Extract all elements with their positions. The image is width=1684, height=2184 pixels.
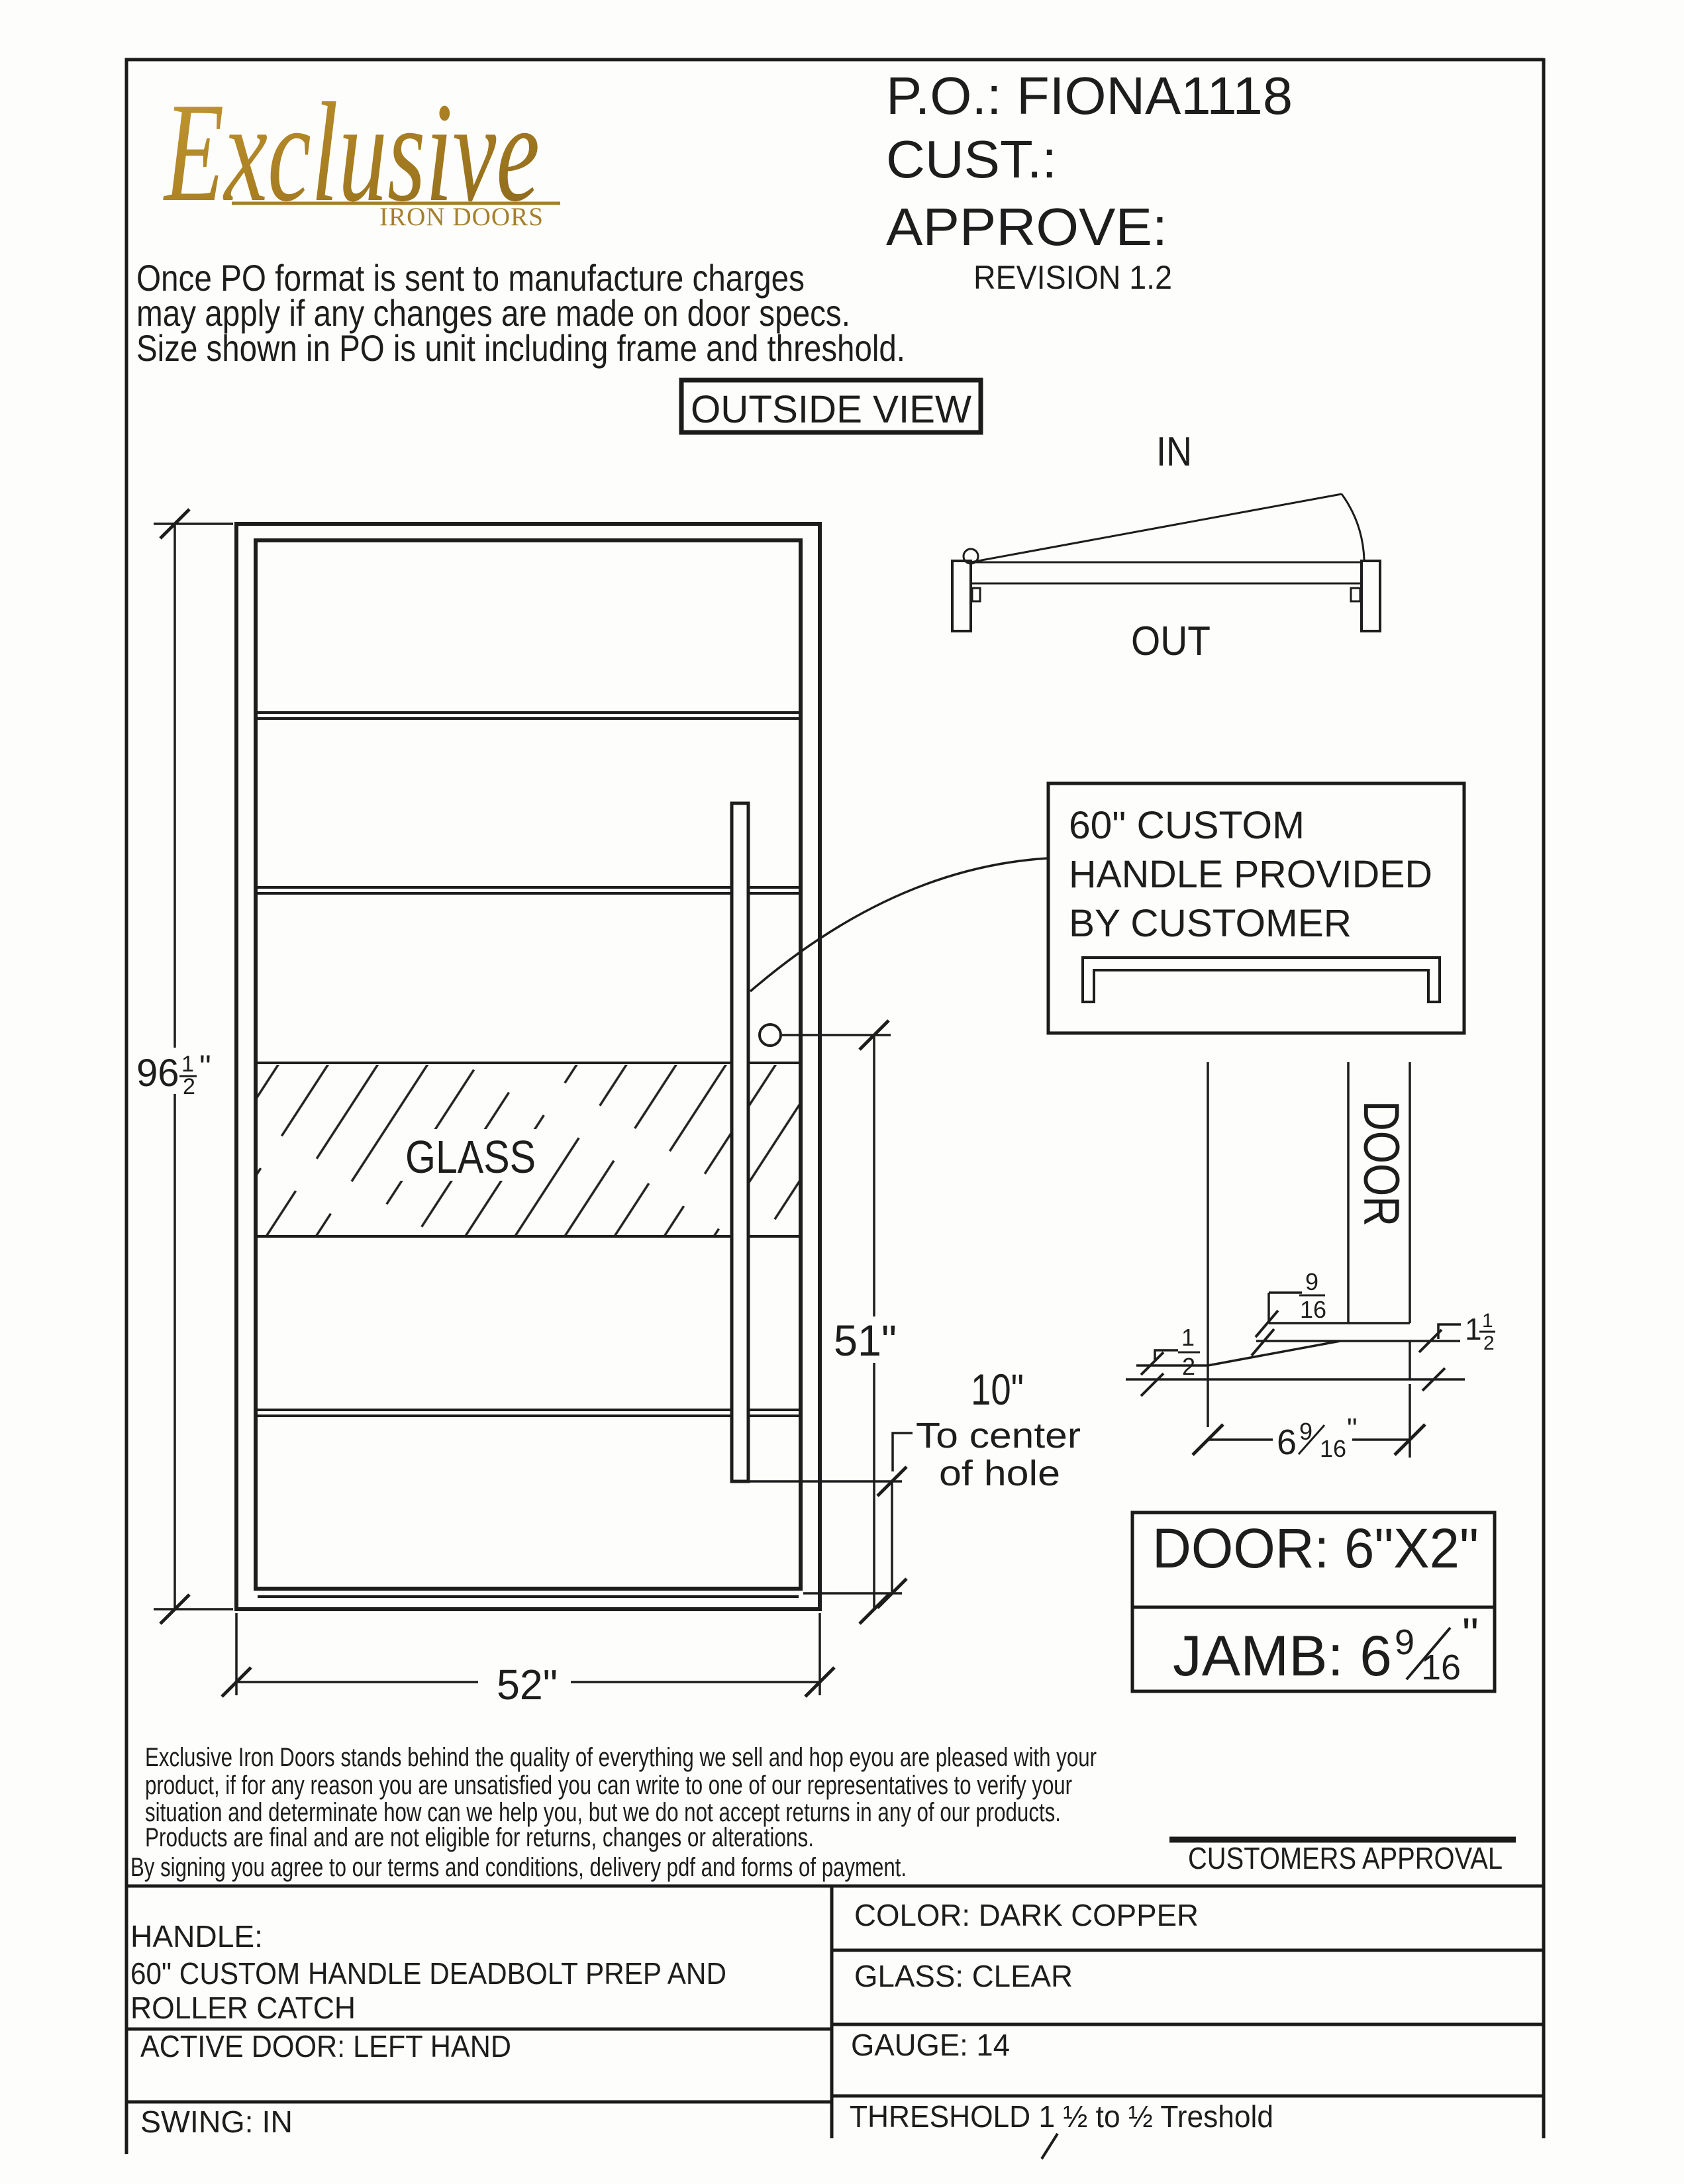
svg-text:Exclusive Iron Doors stands be: Exclusive Iron Doors stands behind the q…	[145, 1743, 1097, 1772]
svg-text:ACTIVE DOOR: LEFT HAND: ACTIVE DOOR: LEFT HAND	[140, 2029, 511, 2063]
svg-text:BY CUSTOMER: BY CUSTOMER	[1069, 902, 1352, 945]
svg-text:REVISION 1.2: REVISION 1.2	[973, 259, 1172, 296]
svg-text:By signing you agree to our te: By signing you agree to our terms and co…	[130, 1853, 907, 1882]
svg-text:1: 1	[1482, 1310, 1493, 1332]
svg-text:16: 16	[1421, 1648, 1461, 1687]
svg-text:10": 10"	[971, 1365, 1024, 1414]
svg-text:CUSTOMERS APPROVAL: CUSTOMERS APPROVAL	[1188, 1841, 1503, 1875]
svg-text:2: 2	[1483, 1332, 1495, 1354]
svg-text:DOOR: 6"X2": DOOR: 6"X2"	[1152, 1517, 1479, 1579]
svg-text:product, if for any reason you: product, if for any reason you are unsat…	[145, 1771, 1072, 1800]
svg-text:IRON DOORS: IRON DOORS	[379, 203, 544, 231]
svg-text:GLASS: GLASS	[405, 1131, 536, 1183]
svg-text:THRESHOLD 1 ½ to ½ Treshold: THRESHOLD 1 ½ to ½ Treshold	[850, 2099, 1273, 2134]
svg-text:HANDLE PROVIDED: HANDLE PROVIDED	[1069, 853, 1432, 896]
svg-text:HANDLE:: HANDLE:	[130, 1919, 263, 1954]
svg-text:ROLLER CATCH: ROLLER CATCH	[130, 1991, 356, 2025]
svg-text:OUT: OUT	[1131, 619, 1211, 664]
svg-text:60" CUSTOM HANDLE DEADBOLT PR: 60" CUSTOM HANDLE DEADBOLT PREP AND	[130, 1956, 726, 1991]
svg-text:APPROVE:: APPROVE:	[886, 197, 1167, 256]
svg-text:": "	[1347, 1413, 1358, 1445]
svg-text:DOOR: DOOR	[1353, 1101, 1409, 1226]
svg-text:16: 16	[1320, 1435, 1346, 1462]
svg-text:60" CUSTOM: 60" CUSTOM	[1069, 804, 1305, 847]
svg-text:96: 96	[136, 1052, 179, 1095]
svg-text:52": 52"	[497, 1661, 558, 1709]
svg-text:6: 6	[1277, 1422, 1297, 1462]
svg-text:GLASS: CLEAR: GLASS: CLEAR	[854, 1959, 1073, 1993]
svg-text:OUTSIDE VIEW: OUTSIDE VIEW	[691, 388, 971, 431]
svg-text:1: 1	[1465, 1312, 1482, 1346]
svg-text:Products are final and are not: Products are final and are not eligible …	[145, 1823, 814, 1852]
svg-text:IN: IN	[1156, 429, 1192, 475]
svg-text:51": 51"	[834, 1316, 897, 1365]
svg-text:1: 1	[181, 1052, 194, 1077]
svg-text:2: 2	[1182, 1353, 1195, 1380]
svg-text:16: 16	[1300, 1296, 1326, 1323]
svg-text:9: 9	[1305, 1268, 1318, 1295]
svg-text:JAMB: 6: JAMB: 6	[1173, 1624, 1392, 1688]
svg-text:Size shown in PO is unit inclu: Size shown in PO is unit including frame…	[136, 327, 905, 369]
svg-text:": "	[199, 1048, 211, 1085]
svg-text:GAUGE: 14: GAUGE: 14	[851, 2028, 1010, 2062]
svg-text:1: 1	[1181, 1324, 1195, 1351]
svg-text:": "	[1462, 1609, 1479, 1660]
svg-text:9: 9	[1395, 1622, 1414, 1662]
svg-text:To center: To center	[916, 1416, 1081, 1456]
svg-text:COLOR: DARK COPPER: COLOR: DARK COPPER	[854, 1898, 1199, 1932]
svg-text:P.O.: FIONA1118: P.O.: FIONA1118	[886, 66, 1293, 125]
svg-text:2: 2	[183, 1074, 195, 1099]
svg-text:of hole: of hole	[939, 1454, 1060, 1493]
svg-text:SWING: IN: SWING: IN	[140, 2105, 293, 2139]
svg-text:CUST.:: CUST.:	[886, 130, 1057, 189]
